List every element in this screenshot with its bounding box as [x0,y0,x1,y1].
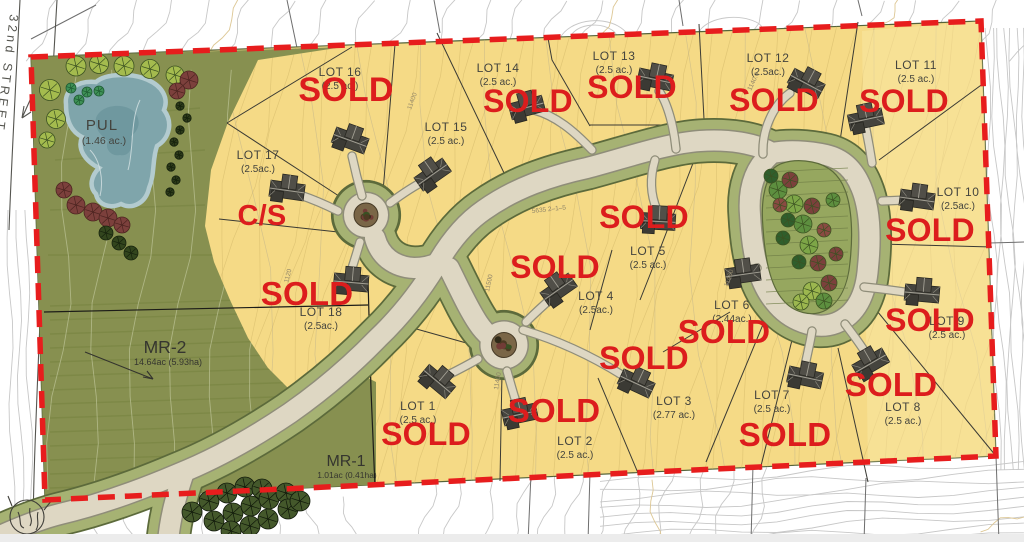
svg-text:SOLD: SOLD [483,83,573,119]
svg-text:SOLD: SOLD [599,199,689,235]
svg-text:LOT 13: LOT 13 [593,49,636,63]
svg-text:LOT 4: LOT 4 [578,289,614,303]
svg-text:LOT 3: LOT 3 [656,394,692,408]
svg-text:SOLD: SOLD [678,313,770,350]
svg-text:LOT 14: LOT 14 [477,61,520,75]
svg-text:(2.5ac.): (2.5ac.) [941,201,975,212]
svg-text:SOLD: SOLD [599,340,689,376]
svg-text:LOT 7: LOT 7 [754,388,790,402]
svg-text:MR-1: MR-1 [326,453,365,470]
svg-text:LOT 1: LOT 1 [400,399,436,413]
svg-text:SOLD: SOLD [885,212,975,248]
svg-text:LOT 6: LOT 6 [714,298,750,312]
svg-text:LOT 5: LOT 5 [630,244,666,258]
svg-text:(2.5 ac.): (2.5 ac.) [557,450,594,461]
svg-text:(2.5 ac.): (2.5 ac.) [885,416,922,427]
svg-text:SOLD: SOLD [508,392,600,429]
svg-text:LOT 10: LOT 10 [937,185,980,199]
svg-text:14.64ac (5.93ha): 14.64ac (5.93ha) [134,357,202,367]
svg-text:(2.5ac.): (2.5ac.) [304,321,338,332]
svg-text:1.01ac (0.41ha): 1.01ac (0.41ha) [317,470,377,480]
svg-text:(2.77 ac.): (2.77 ac.) [653,410,695,421]
svg-text:LOT 2: LOT 2 [557,434,593,448]
svg-text:C/S: C/S [238,200,287,232]
svg-text:(2.5 ac.): (2.5 ac.) [630,260,667,271]
svg-text:SOLD: SOLD [885,302,975,338]
svg-text:SOLD: SOLD [381,416,471,452]
svg-text:(2.5 ac.): (2.5 ac.) [754,404,791,415]
svg-text:SOLD: SOLD [739,416,831,453]
svg-text:(2.5ac.): (2.5ac.) [241,164,275,175]
svg-text:(2.5 ac.): (2.5 ac.) [428,136,465,147]
svg-text:SOLD: SOLD [587,69,677,105]
svg-text:LOT 11: LOT 11 [895,58,937,72]
svg-text:SOLD: SOLD [845,366,937,403]
svg-text:MR-2: MR-2 [144,337,187,357]
svg-text:(1.46 ac.): (1.46 ac.) [82,135,126,147]
svg-text:LOT 15: LOT 15 [425,120,468,134]
svg-text:SOLD: SOLD [261,275,353,312]
svg-text:(2.5ac.): (2.5ac.) [751,67,785,78]
svg-text:SOLD: SOLD [729,82,819,118]
svg-text:LOT 12: LOT 12 [747,51,790,65]
svg-text:SOLD: SOLD [859,83,949,119]
svg-text:LOT 17: LOT 17 [237,148,280,162]
svg-text:PUL: PUL [86,117,118,134]
svg-text:SOLD: SOLD [298,71,393,109]
svg-text:(2.5ac.): (2.5ac.) [579,305,613,316]
svg-text:SOLD: SOLD [510,249,600,285]
